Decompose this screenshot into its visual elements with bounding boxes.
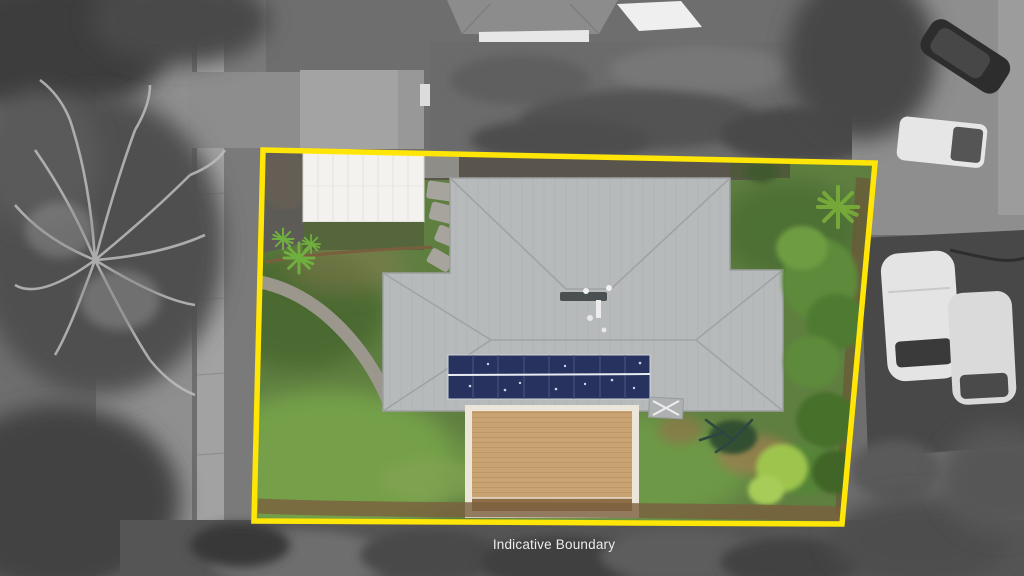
bottom-mulch-strip [258, 506, 840, 514]
carport-roof [303, 151, 424, 222]
white-car-2 [947, 290, 1017, 405]
panel-reflection [448, 374, 650, 375]
roof-vent [560, 292, 607, 301]
rear-porch [648, 397, 683, 419]
timber-deck [465, 405, 639, 518]
palm-tree [818, 187, 858, 227]
neighbor-garage [300, 70, 430, 149]
aerial-photo [0, 0, 1024, 576]
white-ute [896, 116, 988, 169]
boundary-label: Indicative Boundary [0, 537, 1024, 552]
roof-pipe [596, 300, 601, 318]
listing-photo-stage: Indicative Boundary [0, 0, 1024, 576]
property-color-area [200, 140, 885, 540]
solar-panel-array [448, 355, 650, 399]
